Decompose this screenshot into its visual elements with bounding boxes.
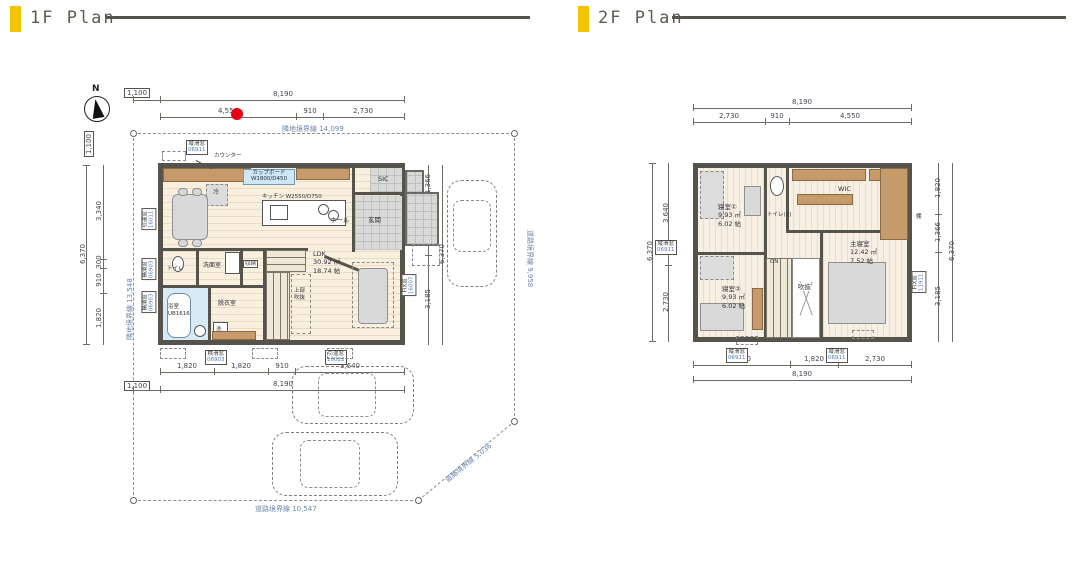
dim-right-total-2f: 6,370 — [948, 236, 956, 266]
dim-left-sub-4: 1,820 — [95, 303, 103, 333]
header-rule-2f — [672, 16, 1066, 19]
ldk-label: LDK 30.92 ㎡ 18.74 帖 — [313, 250, 340, 275]
toilet-label: トイレ — [167, 264, 184, 272]
wic-label: WIC — [838, 185, 851, 193]
down-label: DN — [770, 259, 778, 265]
window-label-left-mid: 横滑窓06903 — [141, 259, 156, 281]
window-label-bottom-right-2f: 縦滑窓06911 — [826, 348, 848, 363]
wall — [786, 168, 789, 230]
dim-line — [160, 117, 405, 118]
boundary-label-diagonal: 道路境界線 5,036 — [443, 441, 494, 485]
cupboard: カップボード W1800/D450 — [243, 169, 295, 185]
desk — [700, 256, 734, 280]
dining-table — [172, 194, 208, 240]
bath-label: 浴室UB1616 — [168, 304, 190, 317]
washbasin — [225, 252, 240, 274]
sofa-outline — [352, 262, 394, 328]
bath-drain-icon — [194, 325, 206, 337]
porch-step — [412, 244, 440, 266]
dim-line — [693, 108, 912, 109]
chair — [192, 239, 202, 247]
dim-left-offset: 1,100 — [84, 131, 94, 157]
car-cabin — [318, 373, 376, 417]
cupboard-size: W1800/D450 — [251, 176, 287, 182]
dim-top-sub-2-2f: 910 — [765, 112, 789, 120]
toilet-bowl-icon — [770, 176, 784, 196]
north-label: N — [92, 84, 100, 94]
boundary-corner-marker — [130, 497, 137, 504]
toilet2-label: トイレ(2) — [767, 210, 791, 218]
chair — [178, 239, 188, 247]
dim-bottom-sub-2: 1,820 — [226, 362, 256, 370]
chair — [192, 188, 202, 196]
boundary-label-right: 道路境界線 9,958 — [525, 230, 535, 310]
wall — [698, 252, 764, 255]
dim-line — [693, 122, 912, 123]
car-cabin — [453, 200, 491, 252]
upper-cabinet — [296, 168, 350, 180]
dim-left-sub-2-2f: 2,730 — [662, 287, 670, 317]
shelf-label: 棚 — [916, 212, 922, 220]
dim-right-sub-3-2f: 3,185 — [934, 281, 942, 311]
accent-bar-2f — [578, 6, 589, 32]
window-label-left-lower: 横滑窓06903 — [141, 292, 156, 314]
header-rule-1f — [106, 16, 530, 19]
wall — [352, 192, 402, 195]
bed-master — [828, 262, 886, 324]
window-label-right: FIX窓16007 — [401, 275, 416, 297]
wall — [820, 230, 823, 338]
dim-bottom-sub-2-2f: 1,820 — [799, 355, 829, 363]
boundary-label-top: 隣地境界線 14,099 — [282, 124, 344, 134]
window-mark — [327, 348, 353, 359]
dim-line — [103, 165, 104, 345]
desk — [744, 186, 761, 216]
dim-top-total-2f: 8,190 — [787, 98, 817, 106]
kitchen-sink — [270, 205, 288, 220]
sic-label: SIC — [378, 175, 389, 183]
boundary-corner-marker — [415, 497, 422, 504]
dim-right-sub-1-2f: 1,820 — [934, 173, 942, 203]
dim-left-total-2f: 6,370 — [646, 236, 654, 266]
bedroom2-label: 寝室② 9.93 ㎡ 6.02 帖 — [722, 285, 745, 310]
boundary-corner-marker — [511, 130, 518, 137]
void-above-label: 上部吹抜 — [294, 288, 305, 301]
car-cabin — [300, 440, 360, 488]
dim-top-offset: 1,100 — [124, 88, 150, 98]
stairs-2f — [766, 258, 792, 338]
boundary-label-bottom: 道路境界線 10,547 — [255, 504, 317, 514]
window-label-top: 縦滑窓06911 — [186, 140, 208, 155]
dim-left-sub-3: 910 — [95, 268, 103, 292]
window-mark — [162, 151, 186, 161]
closet — [880, 168, 908, 240]
wic-shelf — [792, 169, 866, 181]
dim-top-total: 8,190 — [268, 90, 298, 98]
red-marker-dot — [231, 108, 243, 120]
window-label-left-upper: 引違窓16011 — [141, 209, 156, 231]
window-mark — [252, 348, 278, 359]
window-label-bottom: 横滑窓06903 — [205, 350, 227, 365]
dim-bottom-sub-1: 1,820 — [172, 362, 202, 370]
wall — [208, 285, 211, 340]
window-mark — [736, 336, 758, 345]
dim-line — [693, 380, 912, 381]
boundary-corner-marker — [130, 130, 137, 137]
section-title-2f: 2F Plan — [598, 8, 684, 28]
dim-top-sub-3: 2,730 — [348, 107, 378, 115]
dim-bottom-total-2f: 8,190 — [787, 370, 817, 378]
dim-right-sub-2-2f: 1,366 — [934, 217, 942, 247]
counter-label: カウンター — [214, 151, 242, 159]
chair — [178, 188, 188, 196]
shelf — [212, 331, 256, 340]
dim-left-sub-1-2f: 3,640 — [662, 198, 670, 228]
void-atrium — [792, 258, 820, 338]
bedroom1-label: 寝室① 9.93 ㎡ 6.02 帖 — [718, 203, 741, 228]
window-bay — [405, 170, 424, 194]
entrance-label: 玄関 — [368, 216, 381, 224]
wall — [196, 248, 199, 285]
window-mark — [852, 330, 874, 339]
section-title-1f: 1F Plan — [30, 8, 116, 28]
void-label: 吹抜 — [798, 283, 811, 291]
void-above-outline — [291, 274, 311, 334]
closet — [752, 288, 763, 330]
dim-bottom-sub-3: 910 — [270, 362, 294, 370]
dressing-label: 脱衣室 — [218, 300, 236, 308]
entrance-porch — [405, 192, 439, 246]
refrigerator-label: 冷 — [213, 189, 219, 197]
washroom-label: 洗面室 — [203, 262, 221, 270]
site-boundary-bottom — [133, 500, 418, 501]
counter — [163, 168, 251, 182]
dim-right-sub-3: 3,185 — [424, 284, 432, 314]
storage-label: 収納 — [243, 260, 258, 268]
dim-top-sub-1-2f: 2,730 — [714, 112, 744, 120]
dim-line — [133, 100, 405, 101]
accent-bar-1f — [10, 6, 21, 32]
master-label: 主寝室 12.42 ㎡ 7.52 帖 — [850, 240, 877, 265]
dim-left-total: 6,370 — [79, 239, 87, 269]
window-label-left-2f: 縦滑窓06911 — [655, 240, 677, 255]
stairs-upper — [266, 250, 306, 272]
site-boundary-right — [514, 133, 515, 421]
boundary-label-left: 隣地境界線 13,548 — [125, 260, 135, 340]
wic-shelf — [797, 194, 853, 205]
hall-label: ホール — [330, 216, 350, 224]
dim-top-sub-2: 910 — [298, 107, 322, 115]
window-label-bottom-left-2f: 縦滑窓06911 — [726, 348, 748, 363]
kitchen-label: キッチン W2550/D750 — [262, 192, 322, 200]
dim-top-sub-3-2f: 4,550 — [835, 112, 865, 120]
window-label-right-2f: FIX窓11911 — [911, 272, 926, 294]
dim-bottom-sub-3-2f: 2,730 — [860, 355, 890, 363]
floor-plan-sheet: 1F Plan 2F Plan 隣地境界線 14,099 隣地境界線 13,54… — [0, 0, 1074, 580]
dim-line — [693, 365, 912, 366]
stairs-lower — [266, 272, 290, 340]
window-mark — [160, 348, 186, 359]
boundary-corner-marker — [511, 418, 518, 425]
dim-left-sub-1: 3,340 — [95, 196, 103, 226]
